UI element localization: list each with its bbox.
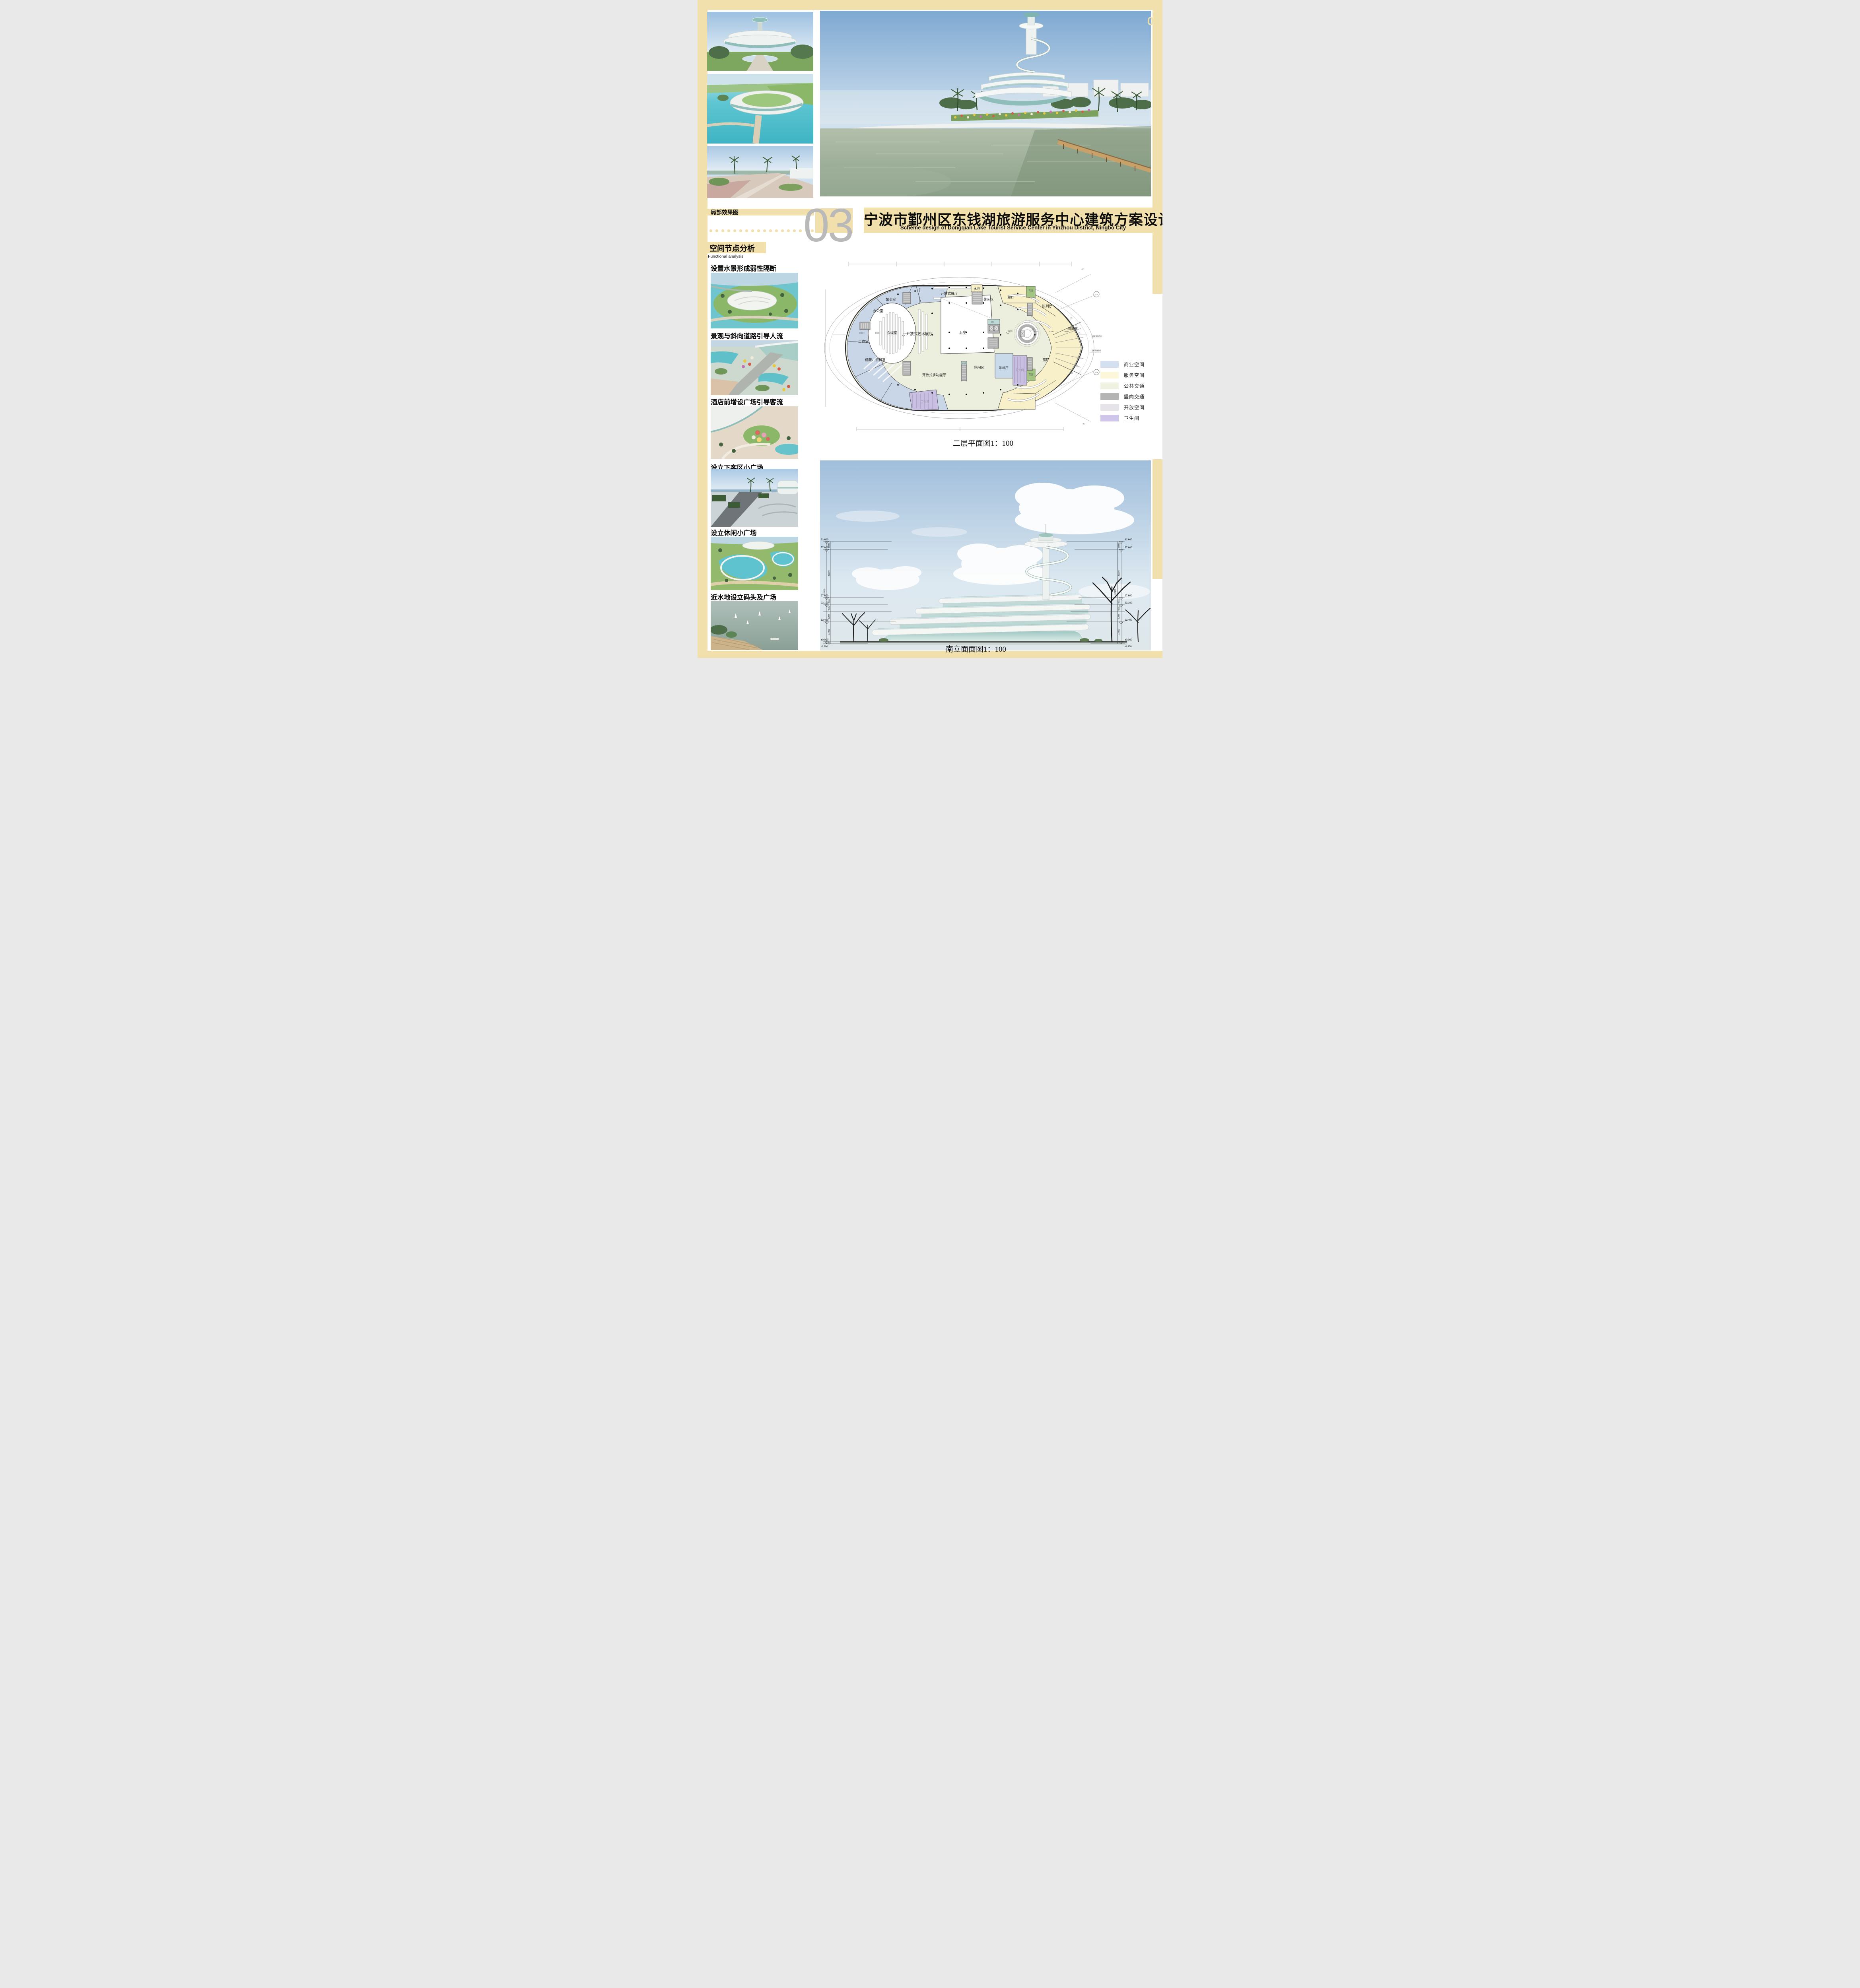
dim-label: 9600 bbox=[1065, 330, 1069, 333]
analysis-label-3: 酒店前增设广场引导客流 bbox=[711, 397, 783, 406]
elev-dim: 4500 bbox=[1118, 606, 1120, 611]
elev-dim: 12400 bbox=[1118, 629, 1120, 635]
legend-label: 开放空间 bbox=[1124, 404, 1145, 411]
elev-dim: 30000 bbox=[828, 571, 830, 577]
elev-dim-total: 62900 bbox=[1114, 589, 1117, 595]
elev-level: 62.600 bbox=[821, 538, 828, 541]
elevation-caption: 南立面面图1：100 bbox=[813, 643, 1139, 654]
legend-label: 商业空间 bbox=[1124, 361, 1145, 368]
room-label: 上空 bbox=[959, 330, 966, 335]
elev-level: ±0.000 bbox=[821, 639, 828, 641]
room-label: 阅览室 bbox=[1067, 326, 1078, 331]
elevation-drawing: 62.600 57.600 27.600 23.100 12.400 ±0.00… bbox=[820, 460, 1151, 650]
elev-level: 12.400 bbox=[1125, 619, 1132, 621]
room-label: 工作室 bbox=[858, 339, 869, 344]
corner-page-number: 03 bbox=[1147, 15, 1160, 28]
room-label-small: 设备 bbox=[991, 321, 994, 323]
analysis-photo-5 bbox=[711, 537, 798, 590]
analysis-photo-3 bbox=[711, 406, 798, 459]
elev-level: 57.600 bbox=[821, 546, 828, 549]
section-title-analysis: 空间节点分析 bbox=[709, 243, 755, 253]
legend-swatch-toilet bbox=[1100, 415, 1119, 421]
grid-angle-label: 30° bbox=[1081, 268, 1084, 271]
level-marker: 6.200 bbox=[904, 332, 908, 334]
analysis-photo-4 bbox=[711, 469, 798, 527]
elev-dim-total: 62900 bbox=[824, 589, 826, 595]
elev-level: 62.600 bbox=[1125, 538, 1132, 541]
dim-label: 9600 bbox=[875, 332, 880, 334]
elev-level: ±0.000 bbox=[1125, 639, 1132, 641]
plan-note-1: 三层屋顶挑檐线 bbox=[1091, 335, 1102, 337]
section-number: 03 bbox=[803, 202, 852, 249]
section-subtitle-analysis: Functional analysis bbox=[708, 254, 743, 259]
analysis-label-1: 设置水景形成弱性隔断 bbox=[711, 263, 776, 273]
room-label-small: 花园 bbox=[1028, 373, 1033, 376]
room-label: 展厅 bbox=[1042, 358, 1050, 362]
legend-label: 卫生间 bbox=[1124, 415, 1139, 421]
analysis-photo-1 bbox=[711, 273, 798, 328]
elev-level: 27.600 bbox=[1125, 594, 1132, 597]
room-label-small: 卫生间 bbox=[1016, 368, 1024, 372]
grid-angle-label: 30° bbox=[1083, 422, 1086, 425]
dim-label: 9600 bbox=[919, 298, 921, 303]
room-label-small: 杂物间 bbox=[962, 362, 966, 364]
plan-note-2: 二层屋顶挑檐线 bbox=[1090, 349, 1101, 351]
elev-dim: 5000 bbox=[1118, 543, 1120, 548]
legend-label: 公共交通 bbox=[1124, 382, 1145, 389]
room-label: 开放式展厅 bbox=[941, 291, 958, 295]
analysis-label-2: 景观与斜向道路引导人流 bbox=[711, 331, 783, 340]
render-photo-aerial-lake bbox=[707, 74, 813, 144]
render-photo-plaza bbox=[707, 146, 813, 198]
elev-dim: 12400 bbox=[828, 629, 830, 635]
elev-dim: 6200 bbox=[828, 614, 830, 619]
analysis-photo-2 bbox=[711, 340, 798, 395]
legend-swatch-public-circulation bbox=[1100, 382, 1119, 389]
legend-row: 公共交通 bbox=[1100, 381, 1145, 391]
room-label: 馆长室 bbox=[886, 297, 896, 301]
room-label-small: 上空 bbox=[1030, 328, 1034, 330]
room-label: 办公室 bbox=[873, 309, 883, 313]
left-accent-strip bbox=[698, 0, 707, 658]
room-label: 咖啡厅 bbox=[999, 366, 1009, 370]
elev-dim: 6200 bbox=[1118, 614, 1120, 619]
room-label: 展厅 bbox=[1007, 295, 1015, 299]
grid-bubble-j4: J-4 bbox=[1095, 371, 1098, 373]
room-label: 开放式艺术展厅 bbox=[906, 332, 933, 336]
legend-label: 竖向交通 bbox=[1124, 393, 1145, 400]
room-label: 休闲区 bbox=[983, 297, 994, 301]
elev-dim: 30000 bbox=[1118, 571, 1120, 577]
render-photo-front-view bbox=[707, 12, 813, 71]
room-label-small: 花园 bbox=[1028, 289, 1033, 292]
analysis-photo-6 bbox=[711, 601, 798, 650]
analysis-label-5: 设立休闲小广场 bbox=[711, 528, 757, 537]
legend-swatch-open-space bbox=[1100, 404, 1119, 411]
grid-bubble-j2: J-2 bbox=[1095, 293, 1098, 295]
legend-swatch-service bbox=[1100, 372, 1119, 379]
legend-row: 商业空间 bbox=[1100, 359, 1145, 370]
right-accent-strip-lower bbox=[1153, 459, 1162, 579]
elev-level: 12.400 bbox=[821, 619, 828, 621]
dim-label: 9600 bbox=[859, 332, 864, 334]
right-accent-strip-upper bbox=[1153, 8, 1162, 294]
elev-level: 57.600 bbox=[1125, 546, 1132, 549]
analysis-label-6: 近水地设立码头及广场 bbox=[711, 592, 776, 602]
plan-legend: 商业空间 服务空间 公共交通 竖向交通 开放空间 卫生间 bbox=[1100, 359, 1145, 423]
plan-caption: 二层平面图1：100 bbox=[820, 437, 1146, 448]
section-title-renders: 局部效果图 bbox=[711, 208, 739, 216]
legend-row: 卫生间 bbox=[1100, 413, 1145, 423]
dim-label: 9420 bbox=[1034, 330, 1039, 333]
elev-dim: 4500 bbox=[828, 599, 830, 604]
top-accent-band bbox=[698, 0, 1162, 10]
elev-dim: 4500 bbox=[1118, 599, 1120, 604]
room-label-small: 卫生间 bbox=[921, 400, 929, 404]
room-label: 休闲区 bbox=[974, 365, 984, 369]
legend-label: 服务空间 bbox=[1124, 372, 1145, 379]
main-render-photo bbox=[820, 11, 1151, 196]
legend-row: 服务空间 bbox=[1100, 370, 1145, 381]
legend-swatch-vertical-circulation bbox=[1100, 393, 1119, 400]
floor-plan-drawing: J-2 J-4 30° 30° 三层屋顶挑檐线 二层屋顶挑檐线 bbox=[817, 250, 1103, 431]
room-label: 开放式多功能厅 bbox=[922, 373, 947, 377]
room-label: 陈列厅 bbox=[1042, 304, 1052, 308]
dim-label: 9600 bbox=[890, 332, 895, 334]
room-label: 储藏、资料室 bbox=[865, 357, 886, 362]
page-subtitle: Scheme design of Dongqian Lake Tourist S… bbox=[864, 225, 1162, 231]
level-marker: 6.200 bbox=[1008, 330, 1013, 332]
elev-dim: 5000 bbox=[828, 543, 830, 548]
elev-dim: 4500 bbox=[828, 606, 830, 611]
dim-label: 9600 bbox=[919, 288, 921, 292]
legend-swatch-commercial bbox=[1100, 361, 1119, 368]
legend-row: 竖向交通 bbox=[1100, 391, 1145, 402]
elev-level: 23.100 bbox=[821, 602, 828, 604]
dim-label: 9790 bbox=[1050, 330, 1054, 333]
legend-row: 开放空间 bbox=[1100, 402, 1145, 413]
elev-level: 23.100 bbox=[1125, 602, 1132, 604]
presentation-board: 局部效果图 03 bbox=[698, 0, 1162, 658]
room-label: 水吧 bbox=[974, 287, 980, 291]
